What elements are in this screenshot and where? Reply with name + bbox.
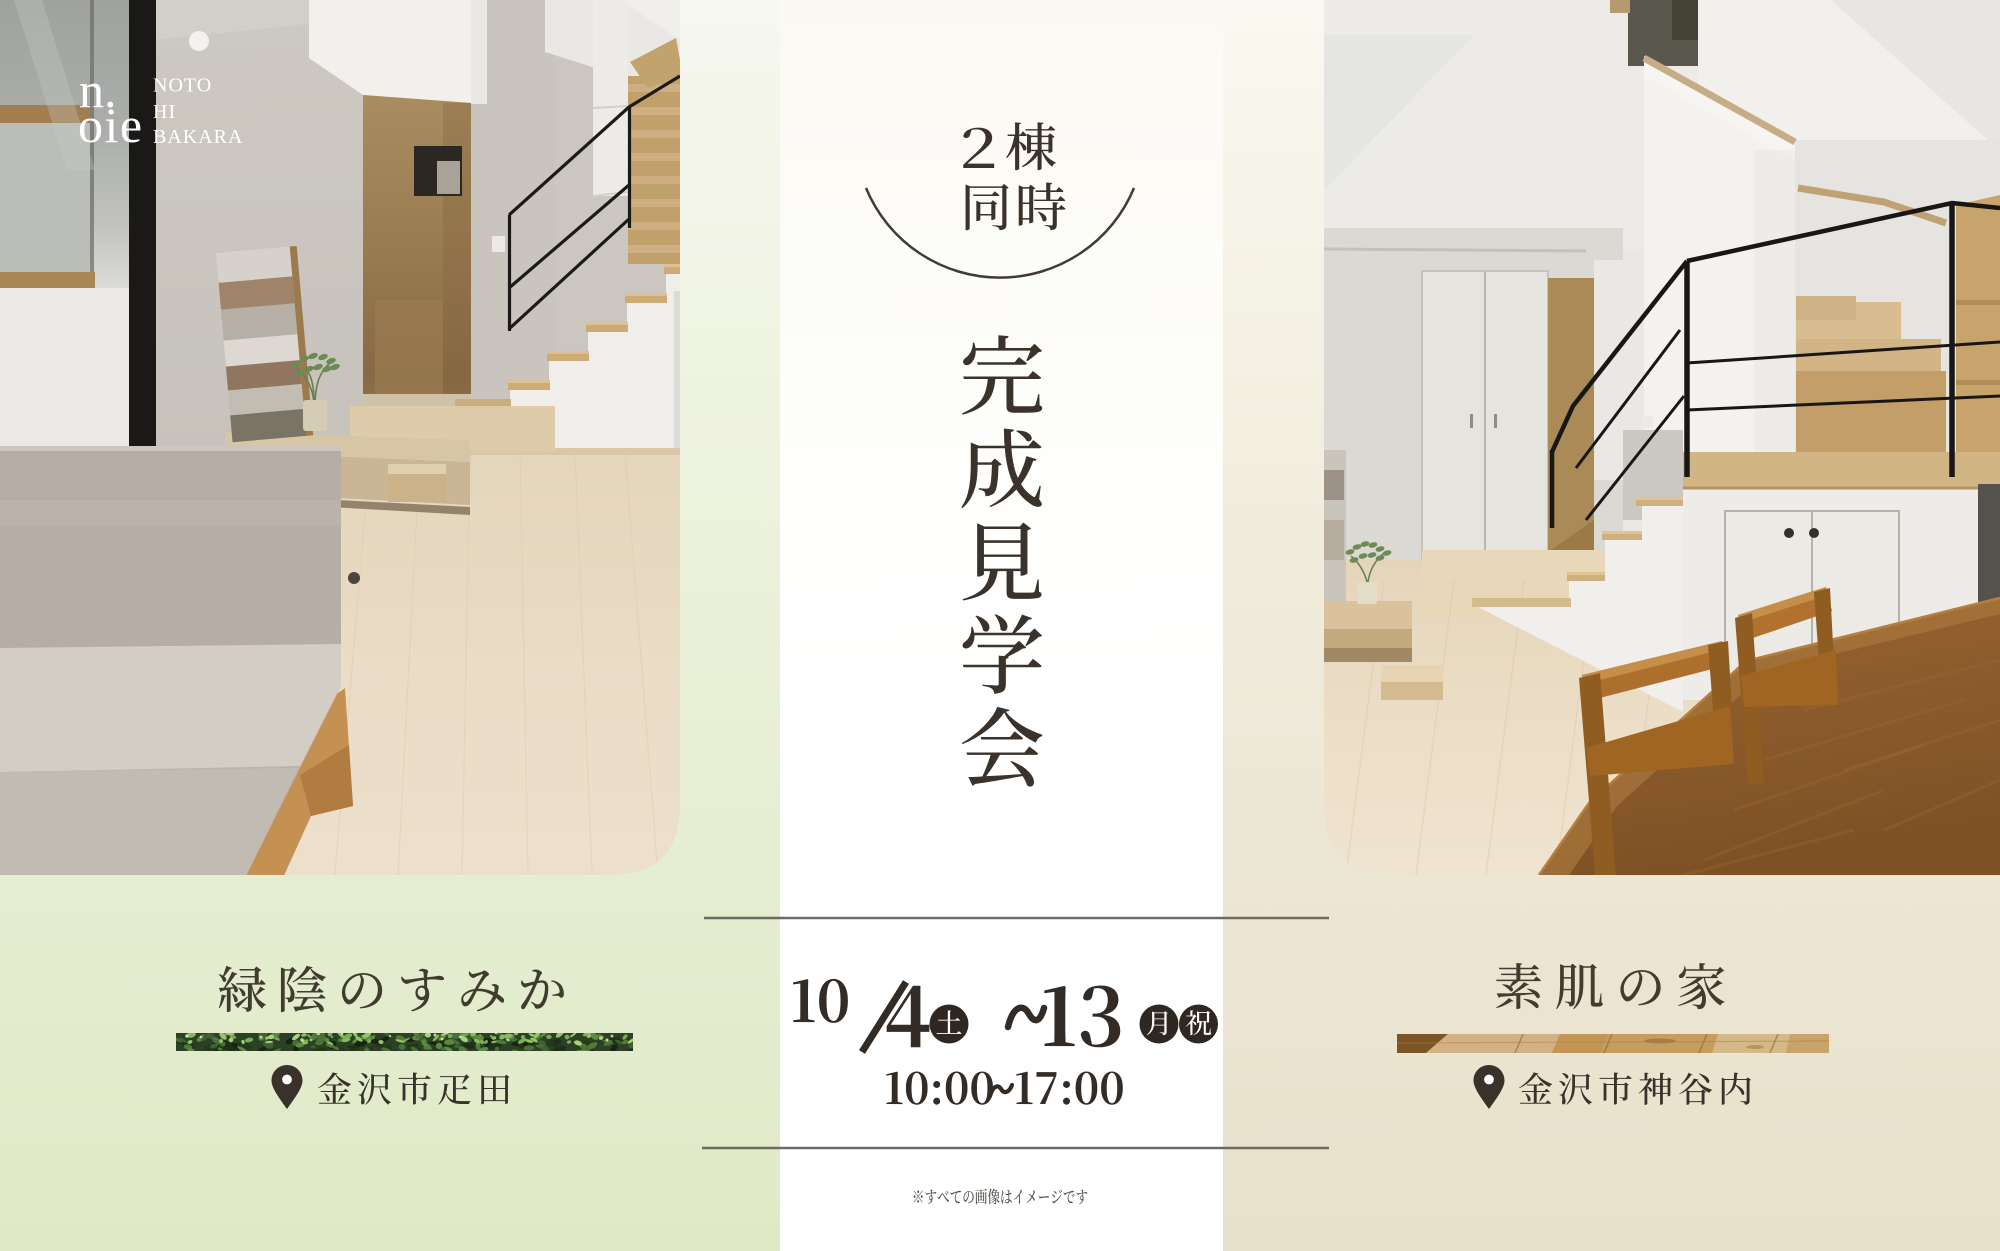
svg-text:oie: oie <box>78 97 144 153</box>
svg-text:NOTO: NOTO <box>153 75 212 97</box>
svg-text:BAKARA: BAKARA <box>153 126 243 148</box>
svg-text:HI: HI <box>153 101 176 123</box>
